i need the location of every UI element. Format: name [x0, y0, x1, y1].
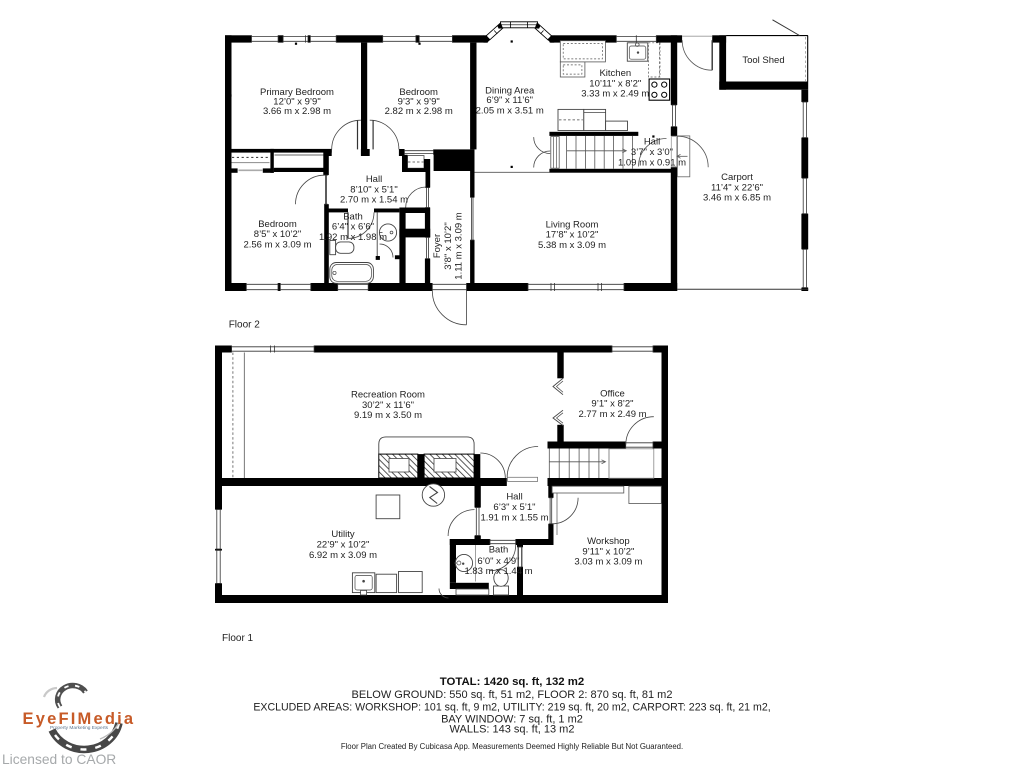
- svg-text:2.56 m x 3.09 m: 2.56 m x 3.09 m: [243, 240, 311, 251]
- svg-text:EXCLUDED AREAS: WORKSHOP: 101: EXCLUDED AREAS: WORKSHOP: 101 sq. ft, 9 …: [253, 702, 770, 714]
- svg-text:Floor 2: Floor 2: [229, 320, 261, 331]
- svg-text:3.46 m x 6.85 m: 3.46 m x 6.85 m: [703, 193, 771, 204]
- svg-text:3.66 m x 2.98 m: 3.66 m x 2.98 m: [263, 106, 331, 117]
- svg-text:Workshop: Workshop: [587, 536, 630, 547]
- svg-text:3’8" x 10’2": 3’8" x 10’2": [443, 222, 454, 269]
- svg-text:1.91 m x 1.55 m: 1.91 m x 1.55 m: [480, 513, 548, 524]
- svg-text:Utility: Utility: [331, 529, 354, 540]
- svg-text:5.38 m x 3.09 m: 5.38 m x 3.09 m: [538, 240, 606, 251]
- svg-text:Floor 1: Floor 1: [222, 633, 254, 644]
- svg-text:9.19 m x 3.50 m: 9.19 m x 3.50 m: [354, 410, 422, 421]
- svg-text:3.03 m x 3.09 m: 3.03 m x 3.09 m: [574, 557, 642, 568]
- svg-text:TOTAL: 1420 sq. ft, 132 m2: TOTAL: 1420 sq. ft, 132 m2: [440, 676, 585, 688]
- svg-text:6.92 m x 3.09 m: 6.92 m x 3.09 m: [309, 550, 377, 561]
- svg-text:Licensed to CAOR: Licensed to CAOR: [2, 752, 116, 767]
- svg-text:8’10" x 5’1": 8’10" x 5’1": [350, 184, 397, 195]
- svg-text:Foyer: Foyer: [432, 234, 443, 258]
- svg-text:6’3" x 5’1": 6’3" x 5’1": [493, 502, 535, 513]
- svg-text:BELOW GROUND: 550 sq. ft, 51 m: BELOW GROUND: 550 sq. ft, 51 m2, FLOOR 2…: [352, 689, 673, 701]
- svg-text:2.77 m x 2.49 m: 2.77 m x 2.49 m: [578, 409, 646, 420]
- svg-text:2.82 m x 2.98 m: 2.82 m x 2.98 m: [385, 106, 453, 117]
- svg-text:2.05 m x 3.51 m: 2.05 m x 3.51 m: [476, 105, 544, 116]
- svg-text:3’7" x 3’0": 3’7" x 3’0": [631, 147, 673, 158]
- svg-text:Tool Shed: Tool Shed: [742, 55, 784, 66]
- svg-text:9’1" x 8’2": 9’1" x 8’2": [591, 399, 633, 410]
- svg-text:Property Marketing Experts: Property Marketing Experts: [50, 725, 109, 731]
- svg-text:3.33 m x 2.49 m: 3.33 m x 2.49 m: [581, 89, 649, 100]
- svg-text:Floor Plan Created By Cubicasa: Floor Plan Created By Cubicasa App. Meas…: [341, 742, 683, 751]
- svg-text:Hall: Hall: [644, 137, 660, 148]
- svg-text:1.11 m x 3.09 m: 1.11 m x 3.09 m: [454, 212, 465, 279]
- svg-text:Hall: Hall: [506, 491, 522, 502]
- svg-text:8’5" x 10’2": 8’5" x 10’2": [254, 229, 301, 240]
- svg-text:Bath: Bath: [489, 545, 509, 556]
- svg-text:2.70 m x 1.54 m: 2.70 m x 1.54 m: [340, 195, 408, 206]
- svg-text:1.83 m x 1.44 m: 1.83 m x 1.44 m: [464, 566, 532, 577]
- svg-text:1.09 m x 0.91 m: 1.09 m x 0.91 m: [618, 158, 686, 169]
- svg-text:WALLS: 143 sq. ft, 13 m2: WALLS: 143 sq. ft, 13 m2: [450, 723, 575, 735]
- svg-text:1.92 m x 1.98 m: 1.92 m x 1.98 m: [319, 232, 387, 243]
